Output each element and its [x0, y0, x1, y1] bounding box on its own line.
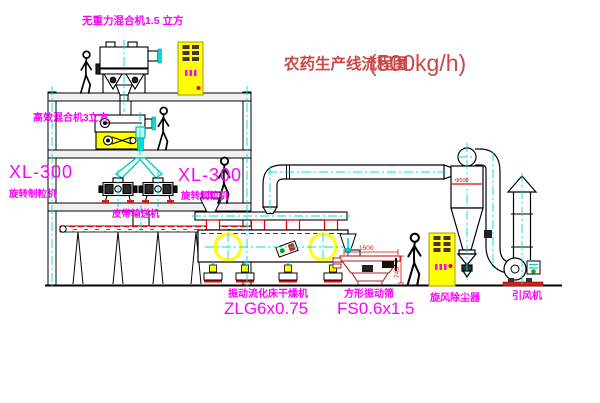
mixer-feed-pipe	[120, 101, 131, 115]
label-granulator-right-name: 旋转制粒机	[180, 190, 229, 202]
zero-gravity-mixer	[96, 42, 162, 101]
label-granulator-left-model: XL-300	[9, 162, 73, 182]
label-belt-conveyor: 皮带输送机	[111, 208, 160, 220]
label-fan: 引风机	[512, 289, 542, 302]
title-capacity: (500kg/h)	[369, 50, 466, 76]
label-cyclone: 旋风除尘器	[429, 291, 481, 304]
label-granulator-right-model: XL-300	[178, 165, 242, 185]
dim-sieve-length: 1500	[359, 245, 374, 252]
y-splitter-chute	[116, 158, 162, 178]
control-cabinet-top	[178, 42, 203, 95]
label-sieve-model: FS0.6x1.5	[337, 299, 415, 318]
control-cabinet-right	[429, 233, 455, 286]
worker-figure-4	[408, 234, 421, 285]
cad-flow-diagram-page: 农药生产线流程图 (500kg/h) 无重力混合机1.5 立方 高效混合机3立方…	[0, 0, 600, 403]
label-second-mixer: 高效混合机3立方	[33, 111, 109, 124]
label-granulator-left-name: 旋转制粒机	[8, 188, 57, 200]
label-dryer-model: ZLG6x0.75	[224, 299, 308, 318]
flow-diagram: 农药生产线流程图 (500kg/h) 无重力混合机1.5 立方 高效混合机3立方…	[0, 0, 600, 403]
label-top-mixer: 无重力混合机1.5 立方	[81, 14, 184, 27]
dim-cyclone: Φ500	[455, 178, 469, 184]
dim-sieve-height: 745	[394, 267, 401, 278]
worker-figure-1	[81, 51, 92, 93]
induced-draft-fan	[503, 258, 543, 286]
dryer-feet	[204, 262, 342, 282]
worker-figure-2	[158, 107, 169, 149]
